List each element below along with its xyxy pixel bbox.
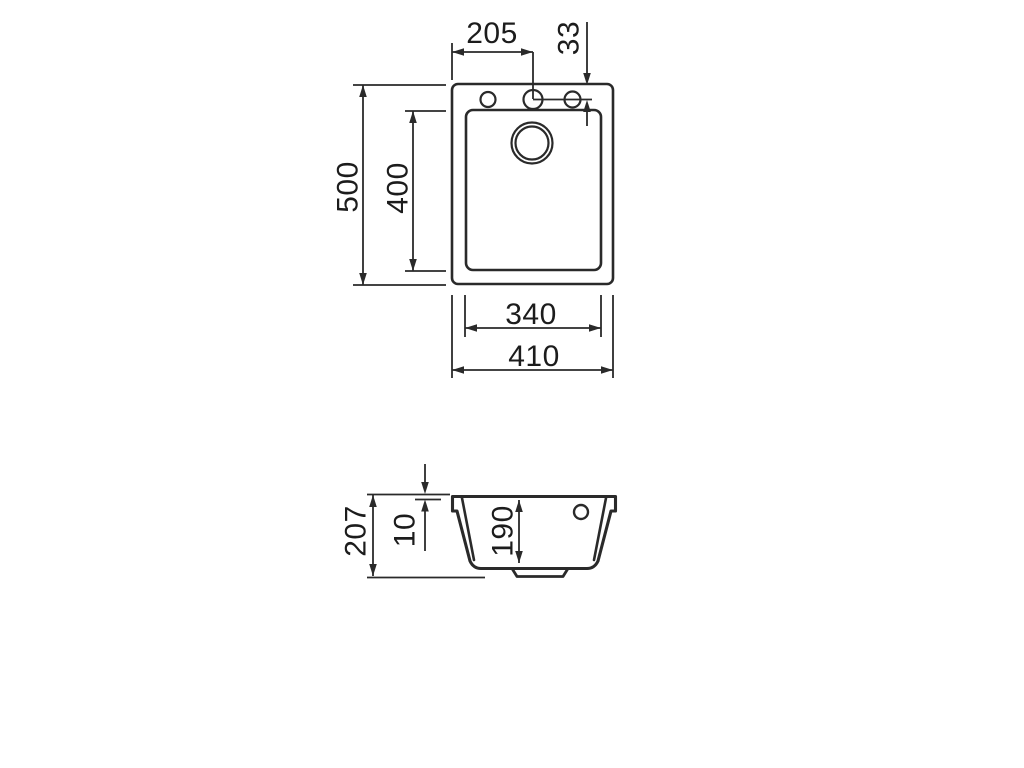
sink-bowl-outline xyxy=(466,110,601,270)
dim-bowl-inner-depth-190: 190 xyxy=(487,500,523,563)
arrowhead-up xyxy=(369,495,377,507)
technical-drawing-page: 500 400 205 xyxy=(0,0,1024,768)
dim-label-10: 10 xyxy=(389,513,422,547)
dim-label-340: 340 xyxy=(505,298,557,331)
sink-technical-drawing: 500 400 205 xyxy=(0,0,1024,768)
section-outer-profile xyxy=(453,497,616,569)
arrowhead-left xyxy=(465,324,477,332)
dim-label-400: 400 xyxy=(382,162,415,214)
arrowhead-down xyxy=(421,482,429,494)
arrowhead-down xyxy=(409,259,417,271)
dim-bowl-width-340: 340 xyxy=(465,295,601,337)
arrowhead-right xyxy=(521,48,533,56)
dim-bowl-depth-400: 400 xyxy=(382,111,447,271)
dim-hole-center-205: 205 xyxy=(452,17,533,99)
arrowhead-left xyxy=(452,48,464,56)
drain-inner-circle xyxy=(516,127,549,160)
dim-label-190: 190 xyxy=(487,505,520,557)
section-view: 207 10 190 xyxy=(340,464,616,578)
top-view: 500 400 205 xyxy=(332,17,614,378)
dim-label-33: 33 xyxy=(553,21,586,55)
sink-outer-rim-outline xyxy=(452,84,613,284)
arrowhead-right xyxy=(601,366,613,374)
arrowhead-up xyxy=(359,85,367,97)
dim-label-207: 207 xyxy=(340,505,373,557)
arrowhead-left xyxy=(452,366,464,374)
arrowhead-up xyxy=(421,500,429,512)
dim-rim-thickness-10: 10 xyxy=(389,464,442,551)
dim-label-205: 205 xyxy=(466,17,518,50)
arrowhead-up xyxy=(409,111,417,123)
faucet-hole-left xyxy=(481,92,496,107)
arrowhead-down xyxy=(369,564,377,576)
overflow-hole xyxy=(574,505,588,519)
dim-label-500: 500 xyxy=(332,161,365,213)
dim-label-410: 410 xyxy=(508,340,560,373)
drain-outer-circle xyxy=(512,123,553,164)
arrowhead-right xyxy=(589,324,601,332)
arrowhead-down xyxy=(359,273,367,285)
